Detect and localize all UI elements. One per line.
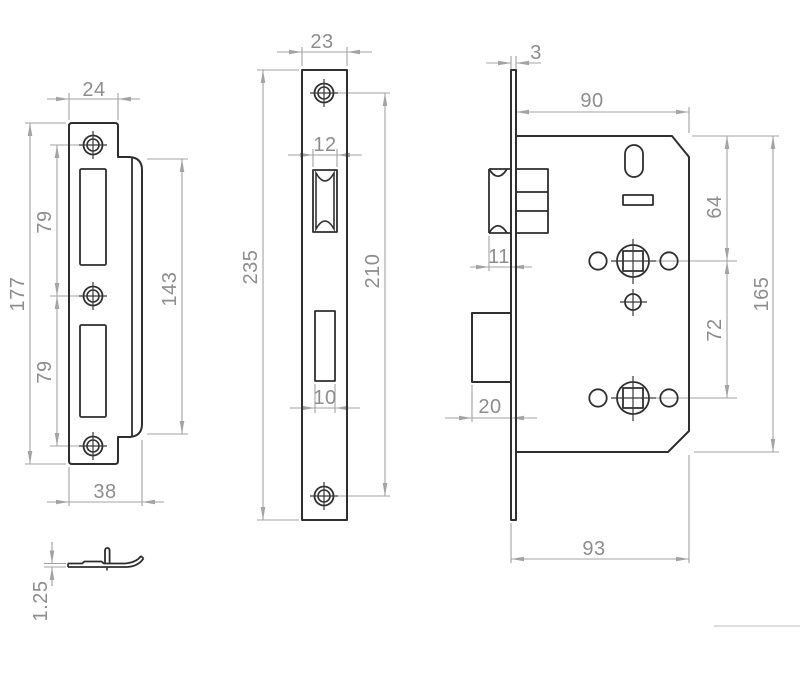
dim-label: 11: [488, 246, 510, 268]
dim-label: 143: [159, 272, 181, 307]
strike-plate-front-view: 24 177 79 79 143: [7, 79, 188, 506]
dim-latch-opening-width: 12: [288, 134, 362, 167]
faceplate-front-view: 23 235 12 10 210: [240, 31, 390, 520]
dim-label: 10: [313, 387, 336, 409]
technical-drawing-page: 24 177 79 79 143: [0, 0, 800, 676]
dim-faceplate-hole-spacing: 210: [336, 93, 390, 496]
dim-label: 20: [478, 396, 501, 418]
dim-label: 12: [313, 134, 336, 156]
fixing-hole: [589, 389, 606, 406]
center-pin-hole: [620, 289, 647, 316]
strike-plate-profile-outline: [68, 548, 144, 571]
dim-deadbolt-opening-width: 10: [290, 384, 360, 413]
lock-body-side-view: 3 90 64 72 165 11: [445, 42, 779, 563]
dim-label: 64: [704, 195, 726, 218]
latch-bolt-front: [316, 173, 334, 229]
deadbolt-side: [472, 313, 511, 382]
dim-label: 93: [582, 538, 605, 560]
dim-strike-top-width: 24: [47, 79, 140, 120]
dim-faceplate-width: 23: [277, 31, 372, 66]
dim-body-width: 90: [516, 90, 689, 112]
dim-label: 24: [82, 79, 105, 101]
dim-label: 177: [7, 277, 29, 312]
strike-screw-hole-middle: [79, 282, 107, 310]
dim-label: 23: [310, 31, 333, 53]
latch-bolt-side: [489, 169, 548, 233]
dim-label: 72: [704, 318, 726, 341]
dim-label: 79: [34, 210, 56, 233]
dim-label: 210: [362, 254, 384, 289]
dim-strike-thickness: 1.25: [30, 542, 66, 621]
dim-faceplate-overall-height: 235: [240, 70, 299, 520]
lock-technical-drawing: 24 177 79 79 143: [0, 0, 800, 676]
faceplate-deadbolt-opening: [315, 311, 335, 381]
dim-strike-hole-spacing-upper: 79: [34, 145, 80, 296]
strike-plate-profile-view: 1.25: [30, 542, 144, 621]
dim-body-height: 165: [751, 136, 773, 452]
oval-slot: [625, 145, 643, 177]
dim-deadbolt-projection: 20: [445, 396, 537, 418]
dim-label: 1.25: [30, 581, 52, 622]
faceplate-screw-hole-bottom: [310, 482, 338, 510]
faceplate-screw-hole-top: [310, 79, 338, 107]
fixing-hole: [589, 252, 606, 269]
strike-screw-hole-top: [79, 131, 107, 159]
strike-profile-tab: [105, 548, 110, 564]
dim-label: 38: [93, 481, 116, 503]
dim-label: 165: [751, 277, 773, 312]
dim-label: 90: [580, 90, 603, 112]
slide-slot: [623, 195, 653, 205]
dim-body-top-to-spindle: 64: [704, 136, 727, 261]
dim-body-faceplate-thickness: 3: [486, 42, 542, 64]
dim-strike-overall-width: 38: [47, 440, 164, 506]
lock-body-extension-lines: [472, 56, 779, 563]
dim-label: 79: [34, 360, 56, 383]
dim-label: 3: [530, 42, 542, 64]
dim-label: 235: [240, 250, 262, 285]
dim-strike-hole-spacing-lower: 79: [34, 296, 80, 446]
dim-overall-depth: 93: [511, 538, 689, 560]
dim-strike-lip-height: 143: [147, 159, 188, 434]
strike-deadbolt-cutout: [80, 325, 106, 417]
dim-latch-projection: 11: [470, 246, 532, 268]
dim-body-spindle-spacing: 72: [704, 261, 727, 398]
strike-screw-hole-bottom: [79, 432, 107, 460]
strike-latch-cutout: [80, 169, 106, 265]
